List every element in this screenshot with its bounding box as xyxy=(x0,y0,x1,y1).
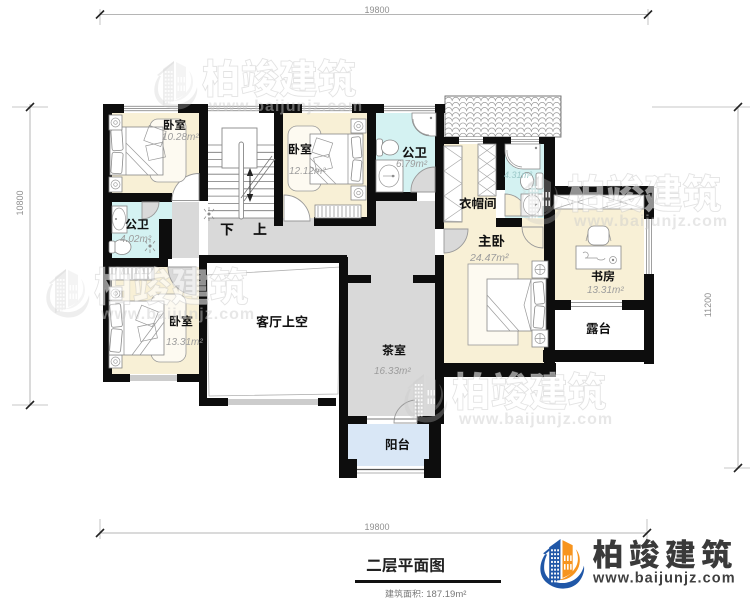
svg-text:4.02m²: 4.02m² xyxy=(120,234,152,245)
svg-text:19800: 19800 xyxy=(364,522,389,532)
svg-text:6.79m²: 6.79m² xyxy=(396,159,428,170)
svg-text:11200: 11200 xyxy=(703,293,713,317)
svg-text:10800: 10800 xyxy=(15,190,25,215)
svg-text:10.28m²: 10.28m² xyxy=(162,132,199,143)
svg-text:www.baijunjz.com: www.baijunjz.com xyxy=(592,571,736,587)
svg-text:19800: 19800 xyxy=(364,5,389,15)
svg-text:: 187.19m²: : 187.19m² xyxy=(421,589,466,600)
svg-text:4.31m²: 4.31m² xyxy=(504,170,533,180)
svg-text:12.12m²: 12.12m² xyxy=(289,166,326,177)
svg-text:24.47m²: 24.47m² xyxy=(469,252,509,264)
svg-text:13.31m²: 13.31m² xyxy=(166,337,203,348)
svg-text:13.31m²: 13.31m² xyxy=(587,285,624,296)
svg-text:16.33m²: 16.33m² xyxy=(374,366,411,377)
